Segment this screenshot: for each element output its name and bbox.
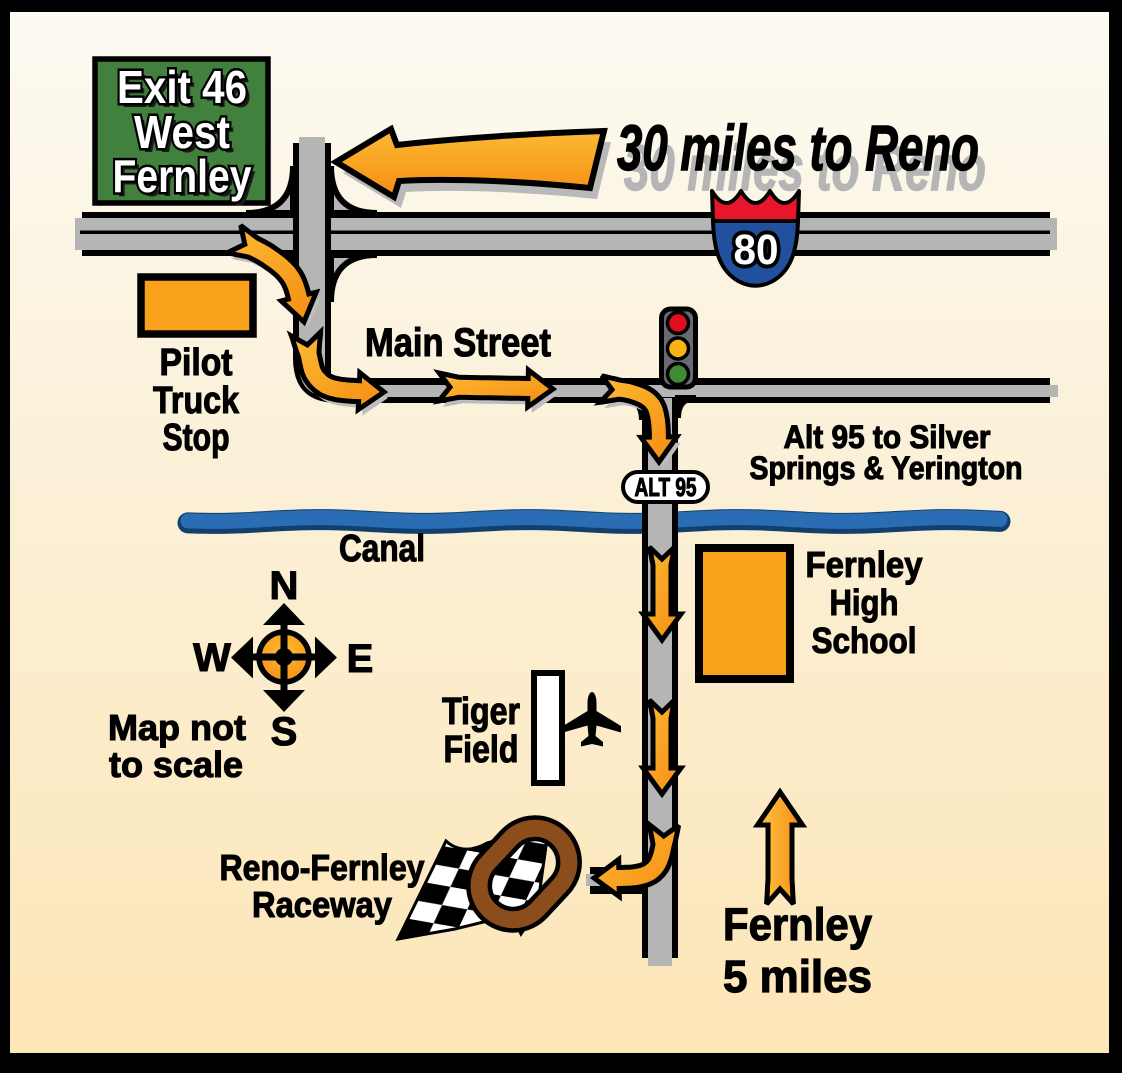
svg-text:5 miles: 5 miles <box>723 951 872 1002</box>
svg-text:Canal: Canal <box>339 528 425 570</box>
svg-text:Map not: Map not <box>108 707 246 748</box>
svg-text:High: High <box>830 582 899 623</box>
svg-text:Tiger: Tiger <box>442 691 520 733</box>
svg-text:30 miles to Reno: 30 miles to Reno <box>617 112 979 184</box>
svg-text:W: W <box>193 636 231 680</box>
svg-text:Fernley: Fernley <box>113 150 252 202</box>
svg-text:Springs & Yerington: Springs & Yerington <box>750 450 1023 486</box>
svg-text:Stop: Stop <box>163 417 230 459</box>
svg-text:Truck: Truck <box>153 380 240 422</box>
svg-text:ALT 95: ALT 95 <box>635 472 697 502</box>
svg-text:80: 80 <box>734 226 779 274</box>
svg-text:to scale: to scale <box>109 744 243 785</box>
svg-text:School: School <box>812 620 917 661</box>
svg-text:N: N <box>270 564 299 608</box>
svg-text:Main Street: Main Street <box>365 321 551 365</box>
svg-text:Fernley: Fernley <box>723 899 872 950</box>
svg-text:S: S <box>271 710 298 754</box>
svg-text:E: E <box>347 637 374 681</box>
svg-text:Fernley: Fernley <box>806 544 923 585</box>
svg-text:Raceway: Raceway <box>252 884 392 925</box>
svg-text:Field: Field <box>444 729 519 771</box>
svg-text:Pilot: Pilot <box>160 342 233 384</box>
svg-text:Reno-Fernley: Reno-Fernley <box>220 847 425 888</box>
